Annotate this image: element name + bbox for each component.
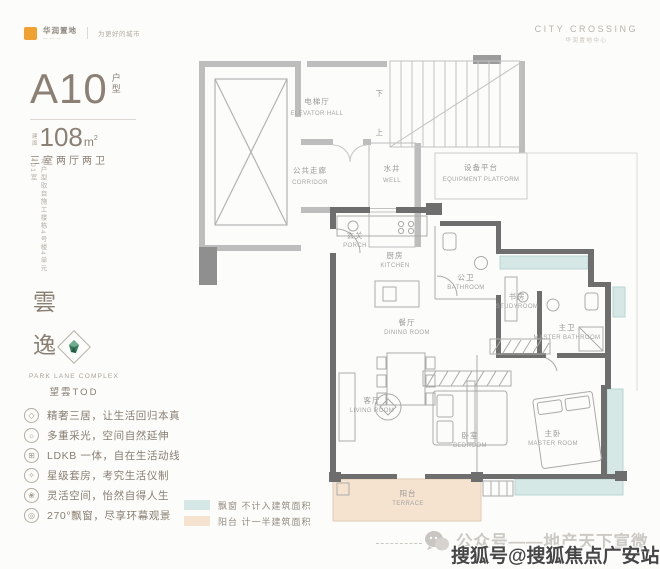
- tod-text: 望雲TOD: [20, 384, 128, 398]
- room-label-well-cn: 水井: [384, 163, 401, 173]
- room-label-corridor-cn: 公共走廊: [293, 165, 327, 175]
- room-label-porch-en: PORCH: [343, 243, 367, 249]
- terrace-swatch: [184, 516, 210, 526]
- park-lane-logo: PARK LANE COMPLEX 望雲TOD: [20, 335, 128, 398]
- room-label-dining-cn: 餐厅: [399, 318, 416, 327]
- brand-tagline: 为更好的城市: [98, 28, 140, 38]
- room-label-equipment-cn: 设备平台: [464, 162, 498, 172]
- room-label-master-en: MASTER ROOM: [528, 441, 578, 447]
- feature-text: 星级套房，考究生活仪制: [47, 468, 169, 483]
- legend: 飘窗 不计入建筑面积 阳台 计一半建筑面积: [184, 497, 312, 529]
- sun-icon: ☼: [24, 428, 39, 443]
- elevator-shaft: [215, 79, 287, 225]
- floor-plan: 下 上: [185, 55, 640, 530]
- area-prefix-char: 建: [32, 135, 38, 141]
- city-crossing-sub: 华润置地中心: [535, 36, 638, 44]
- room-label-masterbath-cn: 主卫: [559, 322, 576, 332]
- stairs-down-label: 下: [376, 89, 385, 98]
- room-label-study-en: STUDYROOM: [496, 304, 539, 310]
- project-name-char: 雲: [33, 283, 56, 317]
- room-label-porch-cn: 玄关: [347, 230, 364, 240]
- brand-logo: 华润置地 — — — 为更好的城市: [24, 25, 140, 41]
- feature-list: ◇ 精奢三居，让生活回归本真 ☼ 多重采光，空间自然延伸 ⊞ LDKB 一体，自…: [24, 405, 180, 525]
- divider: [30, 119, 136, 120]
- wechat-icon: [424, 530, 450, 554]
- park-lane-text: PARK LANE COMPLEX: [20, 373, 128, 380]
- area-sup: 2: [94, 135, 98, 142]
- logo-divider: [87, 27, 88, 39]
- unit-suffix-char: 型: [112, 85, 121, 94]
- terrace-area: [333, 479, 481, 521]
- area-unit: m: [84, 135, 94, 149]
- feature-item: ◇ 精奢三居，让生活回归本真: [24, 405, 180, 425]
- feature-text: LDKB 一体，自在生活动线: [47, 448, 180, 463]
- legend-label: 飘窗: [218, 501, 238, 511]
- unit-info: A10 户 型 建 面 108 m2 三室两厅两卫: [30, 68, 136, 167]
- layout-icon: ⊞: [24, 448, 39, 463]
- city-crossing-label: CITY CROSSING: [535, 24, 638, 34]
- room-label-terrace-en: TERRACE: [392, 501, 423, 507]
- feature-item: ❀ 灵活空间，怡然自得人生: [24, 485, 180, 505]
- brand-name-sub: — — —: [43, 36, 77, 41]
- room-label-masterbath-en: MASTER BATHROOM: [534, 335, 601, 341]
- project-mark-top-right: CITY CROSSING 华润置地中心: [535, 24, 638, 44]
- legend-bay-window: 飘窗 不计入建筑面积: [184, 497, 312, 513]
- feature-item: ⊞ LDKB 一体，自在生活动线: [24, 445, 180, 465]
- room-label-equipment-en: EQUIPMENT PLATFORM: [443, 177, 520, 183]
- corridor-door-arcs: [333, 145, 367, 162]
- gem-icon: ◇: [24, 408, 39, 423]
- diamond-logo-icon: [57, 330, 91, 364]
- feature-item: ☼ 多重采光，空间自然延伸: [24, 425, 180, 445]
- room-label-dining-en: DINING ROOM: [384, 330, 430, 336]
- room-label-bedroom-en: BEDROOM: [453, 443, 487, 449]
- equipment-platform-outline: [435, 153, 527, 199]
- legend-label: 阳台: [218, 517, 238, 527]
- staircase: [390, 61, 520, 147]
- unit-disclaimer: 本户型取自施工楼栋4号楼4单元401室: [27, 158, 47, 278]
- sohu-watermark: 搜狐号@搜狐焦点广安站: [451, 541, 660, 568]
- room-label-living-cn: 客厅: [364, 395, 381, 405]
- feature-text: 多重采光，空间自然延伸: [47, 428, 169, 443]
- wall-stub: [473, 55, 501, 64]
- room-label-corridor-en: CORRIDOR: [292, 180, 328, 186]
- view-icon: ◎: [24, 508, 39, 523]
- feature-item: ◎ 270°飘窗，尽享环幕观景: [24, 505, 180, 525]
- legend-desc: 计一半建筑面积: [242, 517, 312, 527]
- legend-terrace: 阳台 计一半建筑面积: [184, 513, 312, 529]
- feature-text: 270°飘窗，尽享环幕观景: [47, 508, 171, 523]
- room-label-bedroom-cn: 卧室: [462, 430, 479, 440]
- brand-logo-icon: [24, 27, 37, 40]
- star-icon: ✧: [24, 468, 39, 483]
- feature-text: 灵活空间，怡然自得人生: [47, 488, 169, 503]
- room-label-kitchen-en: KITCHEN: [380, 263, 409, 269]
- kitchen-window: [370, 209, 396, 213]
- room-label-elevator-hall-cn: 电梯厅: [304, 96, 330, 106]
- room-label-elevator-hall-en: ELEVATOR HALL: [291, 111, 344, 117]
- unit-name: A10: [30, 68, 108, 110]
- bay-window-swatch: [184, 500, 210, 510]
- room-label-study-cn: 书房: [509, 291, 526, 301]
- apartment-walls: [329, 203, 627, 482]
- room-label-master-cn: 主卧: [545, 428, 562, 438]
- room-label-terrace-cn: 阳台: [400, 488, 417, 498]
- floorplan-poster: 华润置地 — — — 为更好的城市 CITY CROSSING 华润置地中心 A…: [0, 0, 660, 569]
- unit-area: 108: [40, 124, 83, 150]
- brand-name: 华润置地: [43, 25, 77, 36]
- room-label-living-en: LIVING ROOM: [350, 408, 394, 414]
- stairs-up-label: 上: [376, 128, 385, 137]
- room-label-bathroom-cn: 公卫: [458, 273, 475, 282]
- unit-suffix-char: 户: [112, 74, 121, 83]
- room-label-kitchen-cn: 厨房: [387, 250, 404, 260]
- watermark-dash-line: [376, 543, 422, 544]
- feature-item: ✧ 星级套房，考究生活仪制: [24, 465, 180, 485]
- legend-desc: 不计入建筑面积: [242, 501, 312, 511]
- area-prefix-char: 面: [32, 142, 38, 148]
- feature-text: 精奢三居，让生活回归本真: [47, 408, 180, 423]
- flower-icon: ❀: [24, 488, 39, 503]
- pillar: [199, 247, 217, 285]
- room-label-bathroom-en: BATHROOM: [447, 285, 484, 291]
- room-label-well-en: WELL: [383, 178, 401, 184]
